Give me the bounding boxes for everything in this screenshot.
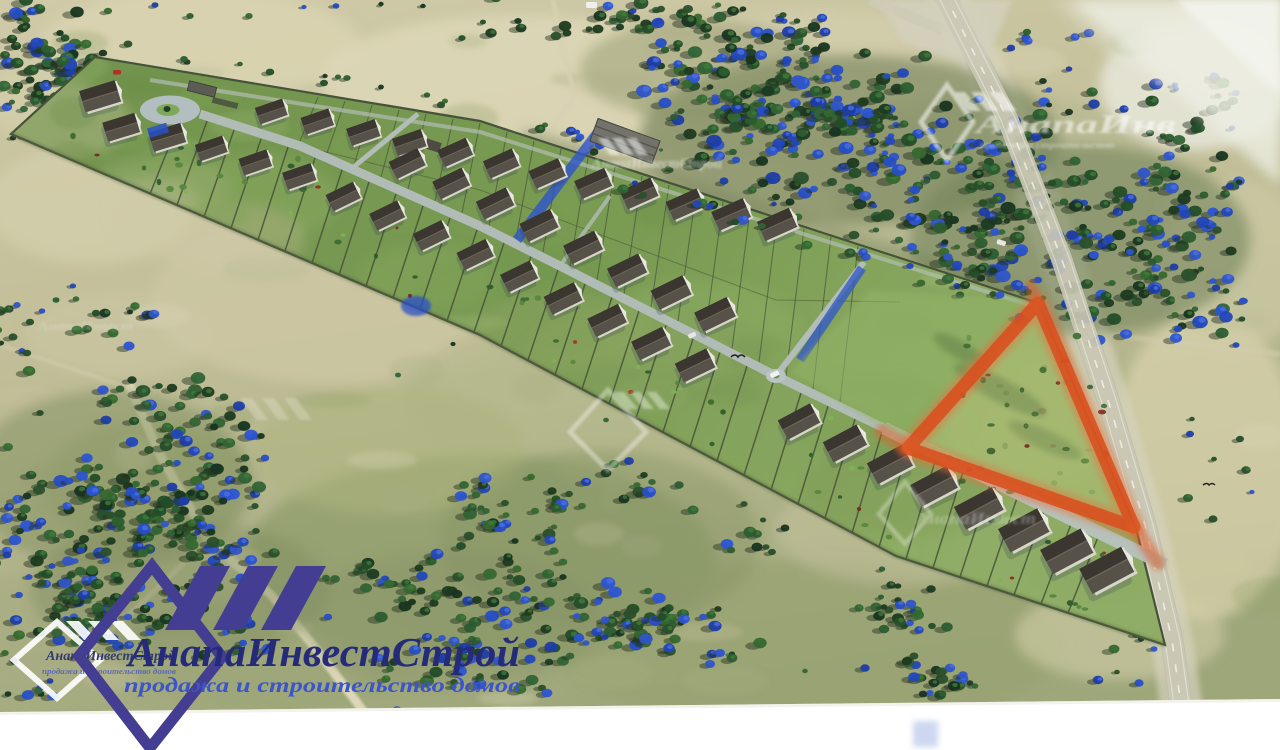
svg-text:АнапаИнвестСтрой: АнапаИнвестСтрой	[125, 629, 520, 675]
svg-text:АнапаИнвестСтрой: АнапаИнвестСтрой	[591, 156, 722, 172]
svg-text:АнапаИнвест: АнапаИнвест	[915, 509, 1036, 528]
svg-text:продажа и строительство домов: продажа и строительство домов	[124, 673, 521, 697]
svg-text:АнапаИнв: АнапаИнв	[973, 110, 1177, 139]
svg-text:продажа и строительство: продажа и строительство	[980, 140, 1115, 151]
svg-text:АнапаИнвест: АнапаИнвест	[37, 318, 133, 333]
